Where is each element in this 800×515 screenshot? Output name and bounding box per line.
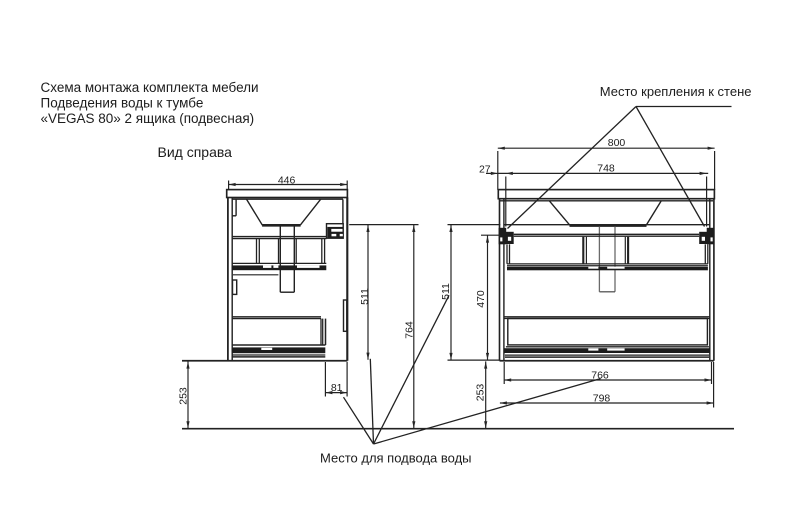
svg-text:Схема монтажа комплекта мебели: Схема монтажа комплекта мебели [41, 80, 259, 95]
svg-text:Место для подвода воды: Место для подвода воды [320, 451, 472, 466]
svg-text:511: 511 [359, 288, 371, 305]
svg-text:Подведения воды к тумбе: Подведения воды к тумбе [41, 96, 204, 111]
svg-text:81: 81 [331, 382, 343, 394]
svg-text:Место крепления к стене: Место крепления к стене [600, 84, 752, 99]
svg-text:764: 764 [404, 321, 416, 339]
svg-text:«VEGAS 80» 2 ящика (подвесная): «VEGAS 80» 2 ящика (подвесная) [41, 111, 255, 126]
svg-text:800: 800 [608, 137, 626, 149]
svg-text:748: 748 [597, 162, 615, 174]
svg-text:253: 253 [474, 384, 486, 402]
svg-text:470: 470 [475, 290, 487, 308]
svg-text:511: 511 [440, 283, 452, 300]
svg-text:253: 253 [178, 387, 190, 405]
svg-text:798: 798 [593, 393, 611, 405]
svg-text:27: 27 [479, 163, 491, 175]
svg-text:Вид справа: Вид справа [158, 144, 233, 160]
svg-text:446: 446 [278, 174, 296, 186]
svg-text:766: 766 [591, 370, 609, 382]
